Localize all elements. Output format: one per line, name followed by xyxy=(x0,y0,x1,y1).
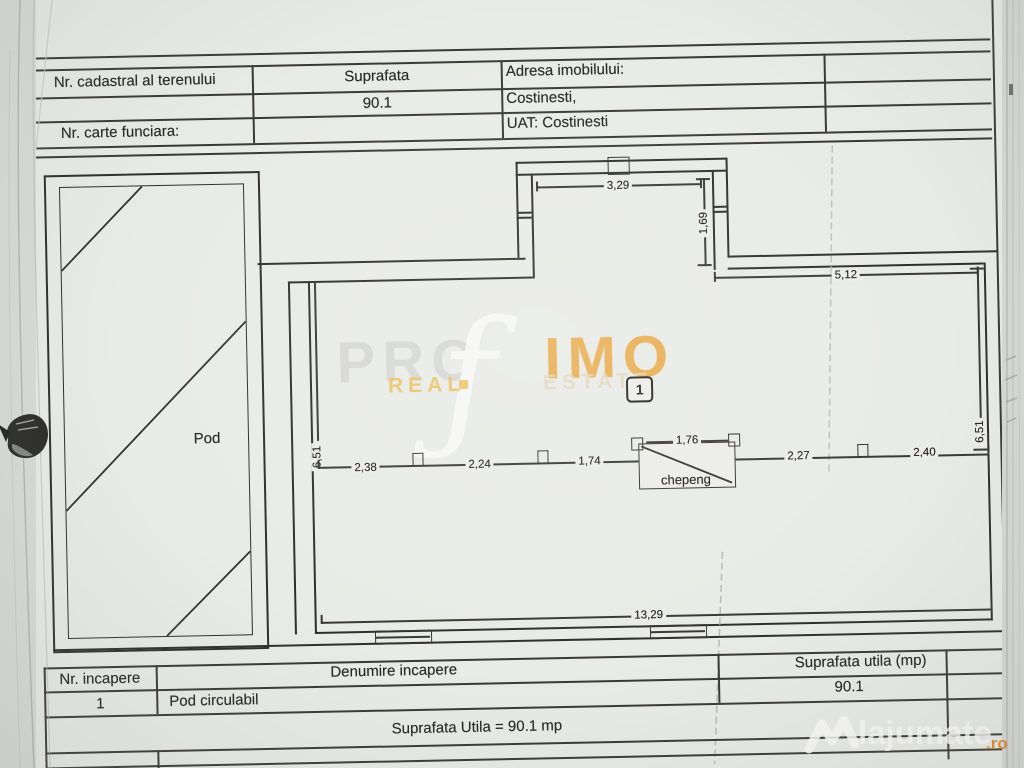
scanned-cadastral-plan: PRO IMO ƒ REAL ESTATE Nr. cadastral al t… xyxy=(0,0,1024,768)
lajumate-logo-text: lajumate xyxy=(858,714,992,752)
page-edge-artifacts xyxy=(0,0,1024,768)
lajumate-logo-tld: .ro xyxy=(986,734,1008,754)
lajumate-watermark: lajumate .ro xyxy=(800,710,1024,766)
lajumate-bird-icon xyxy=(804,716,860,760)
